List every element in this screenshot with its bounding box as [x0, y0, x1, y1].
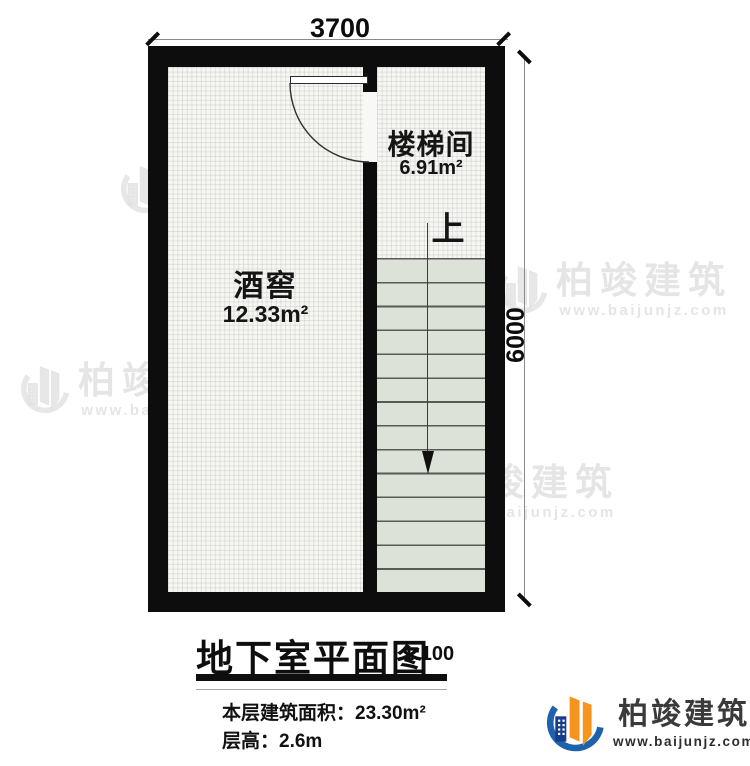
- room-label-wine-cellar: 酒窖: [168, 271, 363, 303]
- room-label-stairwell: 楼梯间: [377, 130, 485, 159]
- company-url: www.baijunjz.com: [613, 734, 750, 749]
- drawing-scale: 1:100: [403, 643, 454, 666]
- stair-direction-line: [427, 223, 428, 453]
- title-underline-thin: [196, 689, 447, 690]
- stair-direction-arrow-icon: [422, 451, 434, 474]
- dimension-width-value: 3700: [280, 13, 400, 44]
- watermark-brand: 柏竣建筑: [556, 262, 732, 299]
- door-leaf: [290, 76, 368, 84]
- room-area-stairwell: 6.91m²: [377, 158, 485, 179]
- room-area-wine-cellar: 12.33m²: [168, 302, 363, 326]
- dimension-height-value: 6000: [502, 295, 532, 375]
- stair-up-label: 上: [418, 212, 478, 247]
- floorplan-drawing: 楼梯间 6.91m² 酒窖 12.33m² 上: [148, 46, 505, 612]
- watermark-url: www.baijunjz.com: [559, 303, 728, 318]
- title-underline-thick: [196, 674, 447, 681]
- company-name: 柏竣建筑: [618, 699, 750, 731]
- brand-logo-watermark-icon: [16, 362, 72, 418]
- floor-area-text: 本层建筑面积：23.30m²: [222, 698, 426, 725]
- floorplan-page: 柏竣建筑 www.baijunjz.com 柏竣建筑 www.baijunjz.…: [0, 0, 750, 766]
- stairs-treads: [377, 258, 485, 592]
- floor-height-text: 层高：2.6m: [222, 726, 322, 753]
- brand-logo-icon: [541, 693, 607, 755]
- room-wine-cellar: [168, 67, 363, 592]
- company-logo: 柏竣建筑 www.baijunjz.com: [541, 693, 750, 755]
- door-opening: [363, 92, 377, 162]
